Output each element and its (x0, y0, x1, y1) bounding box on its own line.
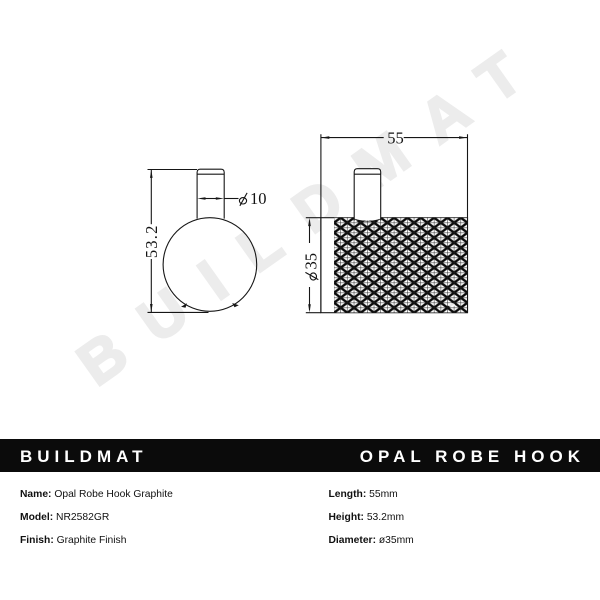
svg-text:35: 35 (301, 253, 320, 270)
svg-text:55: 55 (387, 129, 404, 148)
svg-text:10: 10 (250, 189, 267, 208)
svg-text:53.2: 53.2 (142, 224, 161, 258)
